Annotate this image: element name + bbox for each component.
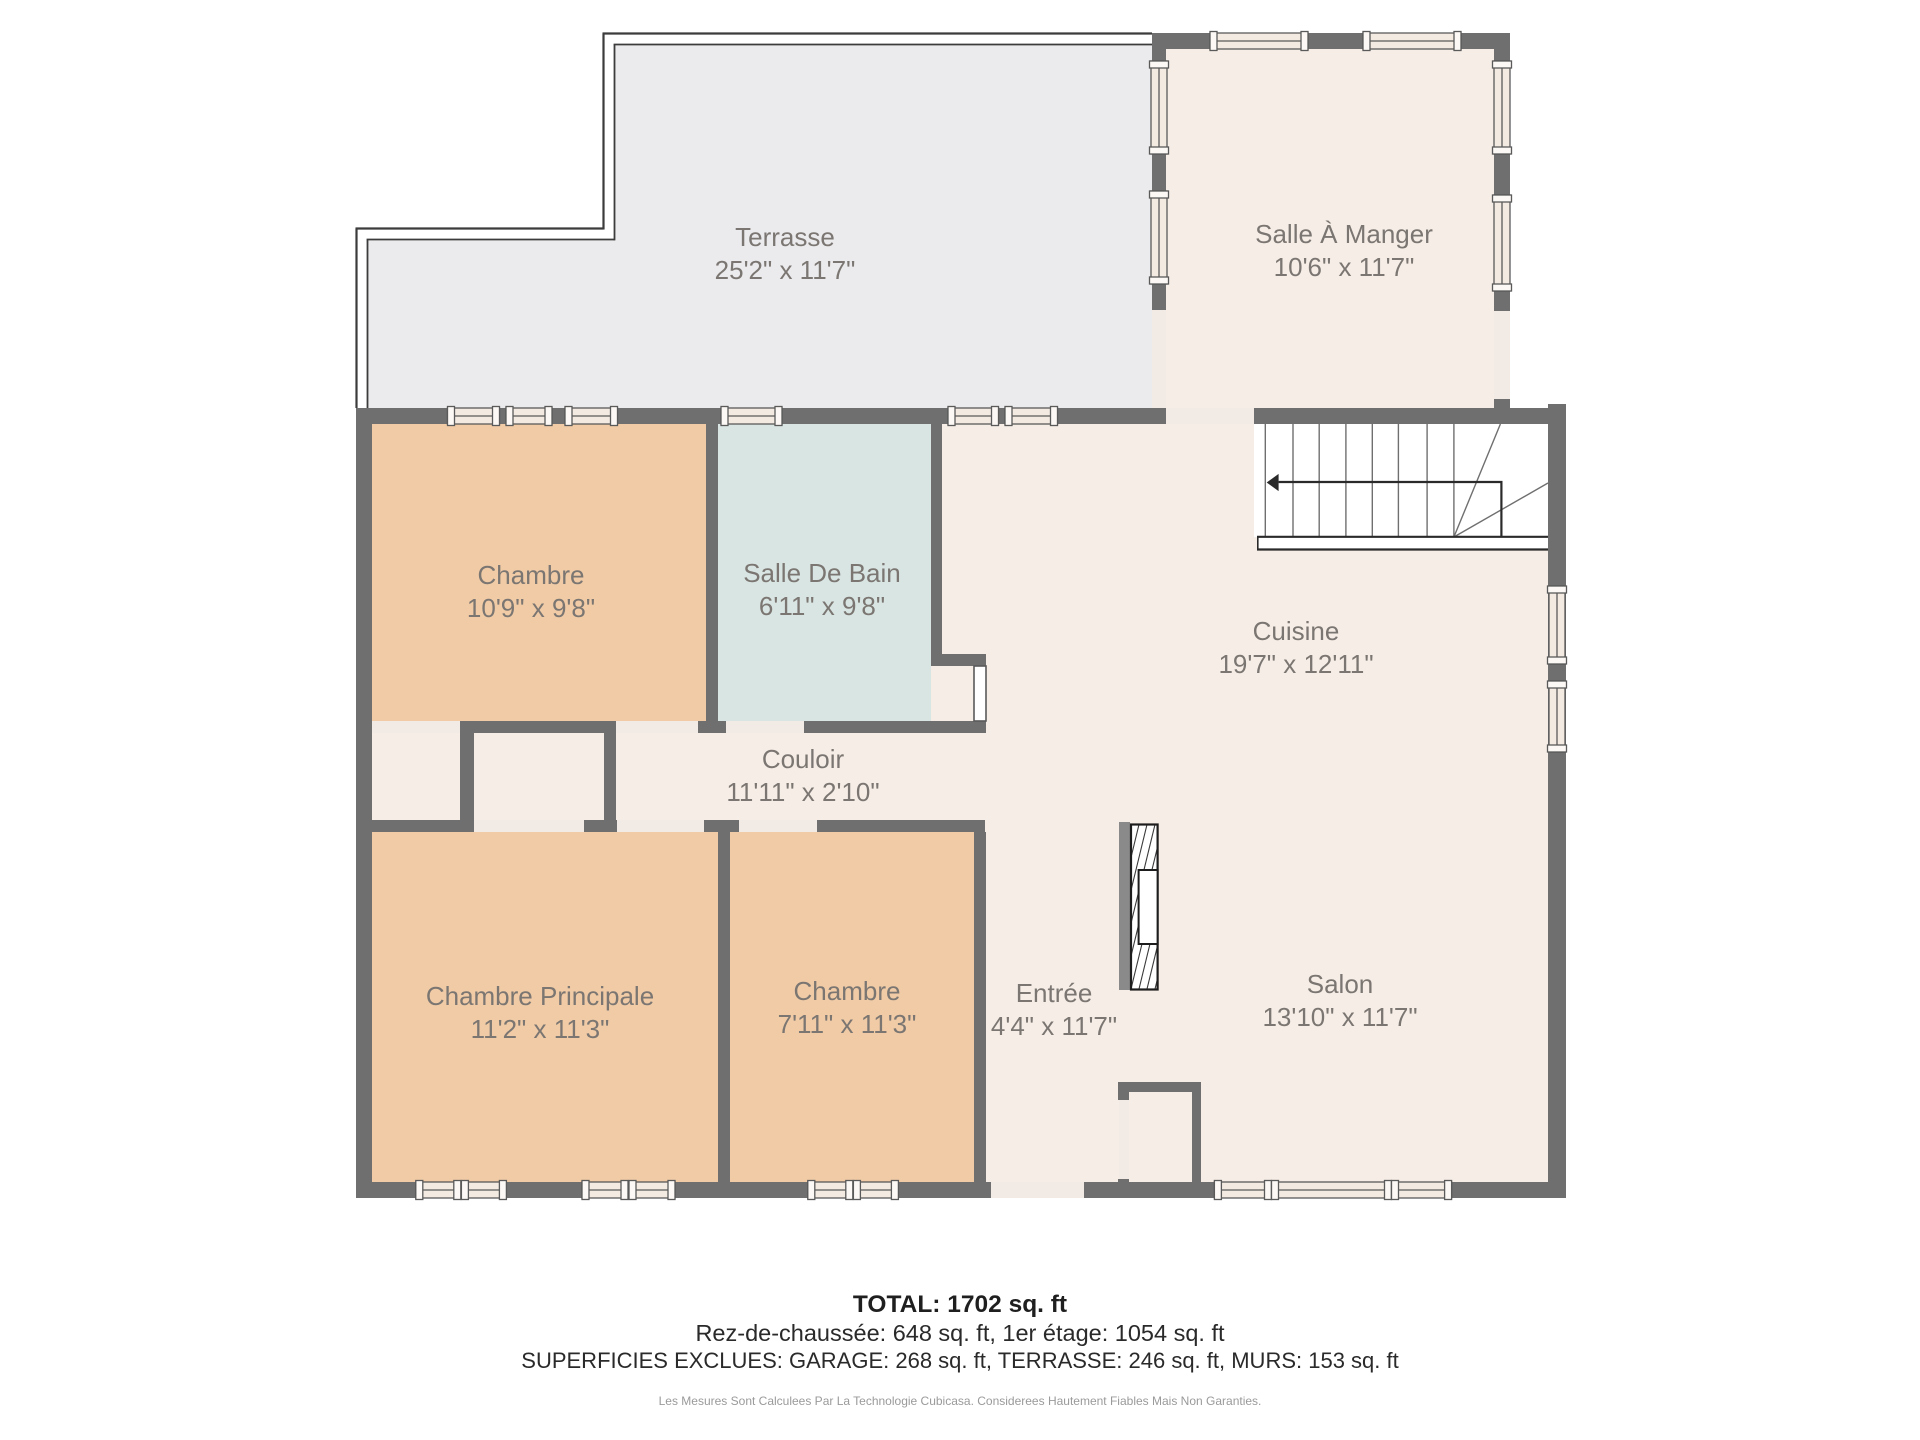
svg-text:SUPERFICIES EXCLUES: GARAGE: 2: SUPERFICIES EXCLUES: GARAGE: 268 sq. ft,… — [521, 1348, 1398, 1373]
svg-text:TOTAL: 1702 sq. ft: TOTAL: 1702 sq. ft — [853, 1291, 1067, 1318]
svg-text:Les Mesures Sont Calculees Par: Les Mesures Sont Calculees Par La Techno… — [659, 1394, 1262, 1408]
svg-text:Couloir: Couloir — [762, 744, 845, 774]
svg-text:25'2" x 11'7": 25'2" x 11'7" — [715, 255, 856, 285]
svg-text:Rez-de-chaussée: 648 sq. ft, 1: Rez-de-chaussée: 648 sq. ft, 1er étage: … — [695, 1320, 1225, 1346]
svg-text:Salle De Bain: Salle De Bain — [743, 558, 901, 588]
svg-text:4'4" x 11'7": 4'4" x 11'7" — [991, 1011, 1117, 1041]
svg-text:13'10" x 11'7": 13'10" x 11'7" — [1262, 1002, 1417, 1032]
svg-text:Terrasse: Terrasse — [735, 222, 835, 252]
svg-text:11'11" x 2'10": 11'11" x 2'10" — [726, 777, 879, 807]
svg-text:10'6" x 11'7": 10'6" x 11'7" — [1274, 252, 1415, 282]
svg-text:19'7" x 12'11": 19'7" x 12'11" — [1218, 649, 1373, 679]
svg-text:Entrée: Entrée — [1016, 978, 1093, 1008]
svg-text:Chambre: Chambre — [478, 560, 585, 590]
svg-text:6'11" x 9'8": 6'11" x 9'8" — [759, 591, 885, 621]
svg-text:10'9" x 9'8": 10'9" x 9'8" — [467, 593, 595, 623]
svg-text:Chambre Principale: Chambre Principale — [426, 981, 654, 1011]
svg-text:11'2" x 11'3": 11'2" x 11'3" — [471, 1014, 610, 1044]
svg-text:Chambre: Chambre — [794, 976, 901, 1006]
svg-text:Salle À Manger: Salle À Manger — [1255, 219, 1433, 249]
svg-text:Salon: Salon — [1307, 969, 1374, 999]
svg-text:7'11" x 11'3": 7'11" x 11'3" — [778, 1009, 917, 1039]
svg-text:Cuisine: Cuisine — [1253, 616, 1340, 646]
